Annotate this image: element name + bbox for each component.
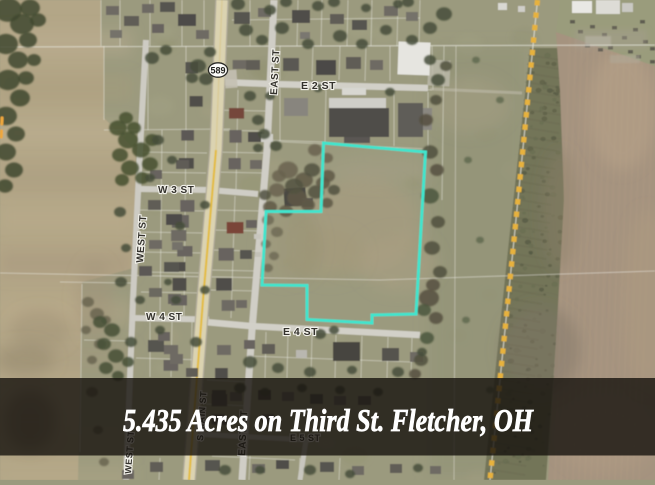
svg-text:589: 589 <box>210 66 225 76</box>
svg-text:E 4 ST: E 4 ST <box>283 326 318 338</box>
svg-text:W 3 ST: W 3 ST <box>158 185 194 196</box>
svg-text:5.435 Acres on Third St. Fletc: 5.435 Acres on Third St. Fletcher, OH <box>123 403 534 438</box>
svg-text:E 2 ST: E 2 ST <box>301 80 336 92</box>
svg-text:W 4 ST: W 4 ST <box>146 312 182 323</box>
